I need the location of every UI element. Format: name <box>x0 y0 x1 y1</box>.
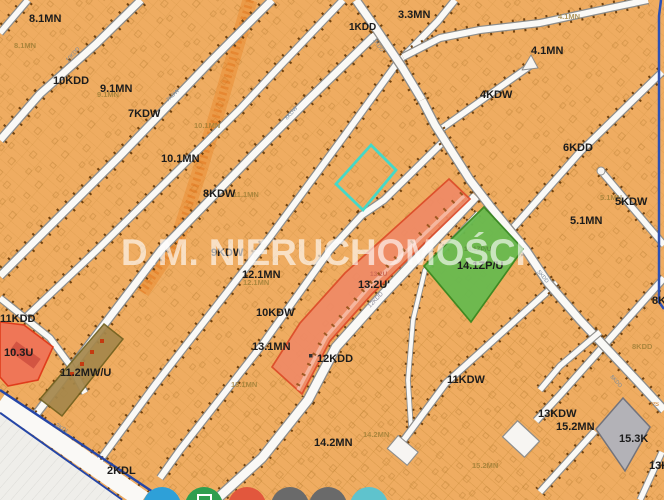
svg-text:15.2MN: 15.2MN <box>556 421 595 433</box>
svg-text:13.1MN: 13.1MN <box>231 380 257 389</box>
svg-text:10.1MN: 10.1MN <box>194 121 220 130</box>
svg-text:2KDL: 2KDL <box>107 465 136 477</box>
svg-text:3.3MN: 3.3MN <box>398 9 430 21</box>
svg-text:11KDW: 11KDW <box>447 374 486 386</box>
svg-text:6KDD: 6KDD <box>563 142 593 154</box>
svg-text:15.3K: 15.3K <box>619 433 648 445</box>
svg-text:14.2MN: 14.2MN <box>314 437 353 449</box>
svg-text:10KDD: 10KDD <box>53 75 89 87</box>
svg-text:4KDW: 4KDW <box>480 89 513 101</box>
svg-text:15.2MN: 15.2MN <box>472 461 498 470</box>
svg-text:D.M. NIERUCHOMOŚCI: D.M. NIERUCHOMOŚCI <box>121 231 526 273</box>
svg-text:13K: 13K <box>649 460 664 472</box>
svg-text:1KDD: 1KDD <box>349 22 376 33</box>
svg-text:8.1MN: 8.1MN <box>29 13 61 25</box>
svg-text:13.1MN: 13.1MN <box>252 341 291 353</box>
svg-text:10KDW: 10KDW <box>256 307 295 319</box>
svg-text:12KDD: 12KDD <box>317 353 353 365</box>
svg-text:14.2MN: 14.2MN <box>363 430 389 439</box>
svg-text:13.2U': 13.2U' <box>358 279 390 291</box>
svg-text:11.1MN: 11.1MN <box>233 190 259 199</box>
svg-text:10.1MN: 10.1MN <box>161 153 200 165</box>
svg-text:9.1MN: 9.1MN <box>100 83 132 95</box>
svg-text:4.1MN: 4.1MN <box>558 12 580 21</box>
svg-text:7KDW: 7KDW <box>128 108 161 120</box>
svg-text:13KDW: 13KDW <box>538 408 577 420</box>
svg-text:11KDD: 11KDD <box>0 313 36 325</box>
svg-text:8.1MN: 8.1MN <box>14 41 36 50</box>
svg-text:10.3U: 10.3U <box>4 347 33 359</box>
svg-text:11.2MW/U: 11.2MW/U <box>60 367 111 379</box>
svg-text:4.1MN: 4.1MN <box>531 45 563 57</box>
svg-text:8KDW: 8KDW <box>203 188 236 200</box>
svg-text:PS: PS <box>651 402 659 408</box>
svg-text:5.1MN: 5.1MN <box>570 215 602 227</box>
svg-text:8KDD: 8KDD <box>632 342 653 351</box>
svg-text:5KDW: 5KDW <box>615 196 648 208</box>
svg-text:8K: 8K <box>652 295 664 307</box>
